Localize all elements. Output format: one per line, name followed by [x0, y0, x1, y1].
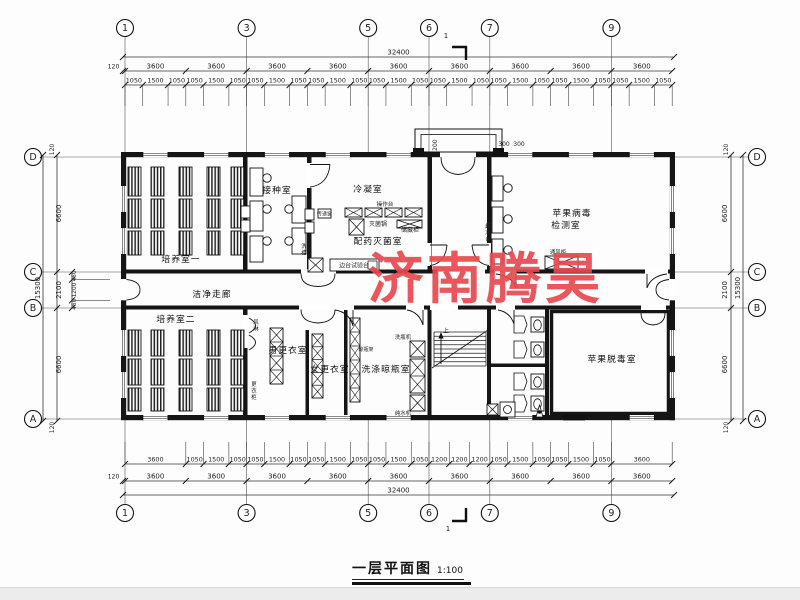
door-swing [407, 310, 423, 325]
title-underline-thin [352, 579, 464, 580]
text-label: 1050 [612, 77, 628, 85]
text-label: 1050 [594, 456, 610, 464]
text-label: 1500 [208, 77, 224, 85]
room-label: 苹果病毒 [552, 207, 591, 219]
text-label: 3600 [450, 473, 468, 481]
text-label: 1050 [369, 77, 385, 85]
text-label: 1050 [655, 77, 671, 85]
text-label: 1500 [330, 77, 346, 85]
drawing-scale: 1:100 [437, 566, 463, 576]
text-label: 3600 [511, 473, 529, 481]
text-label: 1050 [308, 456, 324, 464]
text-label: 6 [426, 23, 432, 34]
text-label: 3600 [146, 63, 164, 71]
text-label: 1050 [230, 77, 246, 85]
text-label: 1050 [290, 77, 306, 85]
text-label: 1050 [187, 77, 203, 85]
text-label: 1200 [472, 456, 488, 464]
room-label: 洗涤晾瓶室 [362, 363, 411, 375]
text-label: 1050 [230, 456, 246, 464]
section-mark [452, 508, 466, 521]
text-label: 3600 [390, 473, 408, 481]
text-label: 3600 [572, 473, 590, 481]
text-label: 120 [108, 64, 120, 71]
text-label: 300 [498, 141, 510, 148]
text-label: 1050 [412, 77, 428, 85]
text-label: 300 [513, 141, 525, 148]
text-label: 1200 [431, 456, 447, 464]
section-mark [452, 47, 466, 60]
equipment-label: 淋 [253, 325, 259, 333]
text-label: 3600 [572, 63, 590, 71]
text-label: 1500 [634, 77, 650, 85]
text-label: 6600 [55, 205, 63, 223]
text-label: 1050 [551, 456, 567, 464]
text-label: 3 [244, 23, 250, 34]
title-underline-thick [352, 582, 471, 585]
text-label: A [30, 414, 37, 425]
room-label: 冷凝室 [353, 183, 382, 195]
text-label: 3 [244, 508, 250, 519]
text-label: C [30, 267, 37, 278]
door-swing [301, 310, 335, 324]
text-label: 1 [446, 525, 450, 533]
equipment-label: 传递窗 [317, 211, 332, 218]
text-label: 3600 [329, 473, 347, 481]
text-label: 1050 [534, 456, 550, 464]
text-label: B [30, 303, 37, 314]
text-label: 9 [608, 23, 614, 34]
equipment-label: 净 [485, 229, 491, 237]
room-label: 培养室二 [156, 313, 195, 325]
watermark-text: 济南腾昊 [368, 252, 604, 307]
text-label: 3600 [268, 63, 286, 71]
room-label: 洁净走廊 [192, 288, 231, 300]
floor-plan-page: 113355667799DDCCBBAA 3240036003600360036… [0, 0, 800, 600]
equipment-label: 边台试验台 [339, 262, 369, 270]
equipment-label: 洗瓶机 [395, 333, 412, 341]
text-label: 120 [49, 144, 56, 156]
text-label: 7 [487, 508, 493, 519]
text-label: 3600 [146, 473, 164, 481]
text-label: 1050 [351, 77, 367, 85]
drawing-title: 一层平面图 [352, 561, 432, 577]
text-label: 1500 [451, 77, 467, 85]
equipment-label: 操作台 [377, 200, 394, 208]
text-label: 1 [444, 32, 448, 40]
text-label: 120 [49, 422, 56, 434]
text-label: 1050 [534, 77, 550, 85]
text-label: 1500 [573, 77, 589, 85]
text-label: 6 [426, 508, 432, 519]
text-label: 5 [365, 508, 371, 519]
text-label: 1050 [369, 456, 385, 464]
text-label: 1050 [491, 77, 507, 85]
equipment-label: 超 [485, 222, 491, 230]
text-label: 6600 [721, 356, 729, 374]
text-label: 3600 [450, 63, 468, 71]
door-swing [301, 274, 335, 287]
text-label: 120 [723, 144, 730, 156]
text-label: 1500 [147, 77, 163, 85]
equipment-label: 更 [251, 381, 257, 388]
text-label: 32400 [387, 49, 409, 57]
text-label: 3600 [207, 473, 225, 481]
room-label: 配药灭菌室 [354, 235, 403, 247]
text-label: 3600 [147, 456, 163, 464]
text-label: 1050 [594, 77, 610, 85]
text-label: 2100 [55, 281, 63, 299]
text-label: 1050 [473, 77, 489, 85]
door-swing [498, 310, 514, 324]
text-label: 3600 [511, 63, 529, 71]
text-label: 1050 [412, 456, 428, 464]
text-label: 1500 [269, 456, 285, 464]
text-label: 1050 [430, 77, 446, 85]
text-label: 15300 [734, 277, 742, 299]
text-label: 1500 [512, 77, 528, 85]
text-label: 1200 [451, 456, 467, 464]
text-label: 32400 [387, 487, 409, 495]
text-label: 15300 [34, 277, 42, 299]
equipment-label: 衣 [251, 387, 257, 395]
equipment-label: 纯水机 [395, 409, 412, 417]
room-label: 苹果脱毒室 [588, 353, 637, 365]
text-label: 5 [365, 23, 371, 34]
door-swing [441, 157, 475, 175]
equipment-label: 风 [253, 319, 259, 326]
text-label: 6600 [721, 205, 729, 223]
text-label: 6600 [55, 356, 63, 374]
text-label: 9 [608, 508, 614, 519]
text-label: C [754, 267, 761, 278]
text-label: 1500 [390, 77, 406, 85]
text-label: 1050 [290, 456, 306, 464]
text-label: 1050 [247, 456, 263, 464]
equipment-label: 洗 [301, 242, 307, 250]
text-label: 1500 [269, 77, 285, 85]
equipment-label: 台 [485, 235, 490, 243]
text-label: 3600 [633, 63, 651, 71]
equipment-label: 储藏柜 [401, 226, 419, 234]
door-swing [641, 313, 665, 325]
room-label: 检测室 [551, 219, 580, 231]
door-swing [249, 335, 256, 350]
room-label: 女更衣室 [310, 363, 349, 375]
text-label: B [754, 303, 761, 314]
text-label: 1050 [351, 456, 367, 464]
equipment-label: 上 [443, 327, 449, 335]
text-label: 1050 [308, 77, 324, 85]
text-label: 1500 [573, 456, 589, 464]
text-label: 1050 [491, 456, 507, 464]
text-label: A [754, 414, 761, 425]
text-label: 3600 [207, 63, 225, 71]
text-label: 1200 [72, 282, 78, 297]
text-label: 1050 [126, 77, 142, 85]
text-label: 3600 [390, 63, 408, 71]
text-label: 3600 [268, 473, 286, 481]
text-label: 1500 [390, 456, 406, 464]
drawing-title-block: 一层平面图1:100 [352, 558, 471, 585]
equipment-label: 柜 [251, 393, 257, 401]
text-label: 3600 [633, 473, 651, 481]
equipment-label: 槽 [301, 249, 307, 257]
equipment-label: 灭菌锅 [369, 220, 387, 228]
text-label: 1500 [330, 456, 346, 464]
text-label: 3600 [329, 63, 347, 71]
room-label: 男更衣室 [268, 344, 307, 356]
text-label: 1050 [187, 456, 203, 464]
text-label: 1050 [169, 77, 185, 85]
door-swing [656, 280, 669, 301]
room-label: 培养室一 [161, 253, 200, 265]
text-label: 1 [122, 23, 128, 34]
text-label: 120 [723, 422, 730, 434]
page-bottom-strip [0, 587, 800, 600]
room-label: 接种室 [262, 184, 291, 196]
text-label: 1500 [208, 456, 224, 464]
text-label: 120 [108, 474, 120, 481]
door-swing [310, 165, 330, 188]
text-label: 7 [487, 23, 493, 34]
text-label: 3600 [634, 456, 650, 464]
text-label: D [753, 152, 760, 163]
text-label: 1500 [512, 456, 528, 464]
text-label: 1050 [247, 77, 263, 85]
door-swing [127, 280, 141, 301]
equipment-label: 晾瓶架 [358, 346, 373, 353]
text-label: 2100 [721, 281, 729, 299]
text-label: 1 [122, 508, 128, 519]
text-label: 1050 [551, 77, 567, 85]
text-label: D [29, 152, 36, 163]
